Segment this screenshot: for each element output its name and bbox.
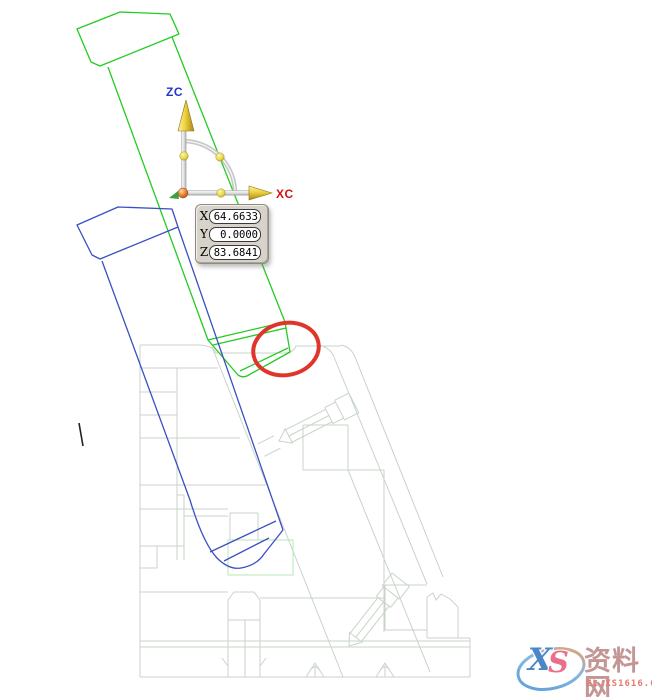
- mold-ejector-channel[interactable]: [222, 513, 385, 677]
- mold-bottom-screw-tips[interactable]: [306, 663, 394, 677]
- watermark-site-url: ZL.XS1616.COM: [586, 679, 652, 689]
- mold-left-details[interactable]: [140, 368, 266, 592]
- mold-body-wireframe[interactable]: [140, 345, 470, 677]
- z-coordinate-input[interactable]: [209, 245, 261, 260]
- coordinate-panel: X Y Z: [195, 204, 269, 264]
- rotation-arc-highlight: [184, 141, 235, 193]
- coordinate-row-x: X: [199, 209, 264, 224]
- mold-outline[interactable]: [140, 345, 470, 677]
- x-axis-label: XC: [276, 187, 294, 201]
- tick-mark: [79, 423, 83, 446]
- coordinate-row-z: Z: [199, 245, 264, 260]
- cad-viewport[interactable]: ZC XC X Y Z X S 资料网 ZL.XS1616.COM: [0, 0, 652, 697]
- mold-diagonal-faces[interactable]: [212, 345, 443, 677]
- drag-handle-z[interactable]: [180, 152, 188, 160]
- watermark-logo: X S 资料网 ZL.XS1616.COM: [510, 641, 652, 696]
- watermark-letter-s: S: [548, 645, 569, 679]
- z-axis-shaft[interactable]: [182, 128, 187, 193]
- z-axis-label: ZC: [166, 85, 183, 99]
- x-axis-arrow-icon[interactable]: [249, 186, 272, 200]
- viewport-canvas[interactable]: [0, 0, 652, 697]
- y-field-label: Y: [199, 227, 209, 242]
- drag-handle-rotate[interactable]: [216, 153, 224, 161]
- coordinate-row-y: Y: [199, 227, 264, 242]
- bolt-wireframe-upper[interactable]: [256, 393, 359, 460]
- watermark-site-name: 资料网: [584, 647, 652, 697]
- x-field-label: X: [199, 209, 209, 224]
- wcs-triad[interactable]: [169, 100, 272, 200]
- y-coordinate-input[interactable]: [209, 227, 261, 242]
- y-axis-hidden-arrow-icon[interactable]: [169, 191, 179, 199]
- origin-handle[interactable]: [178, 188, 188, 198]
- z-field-label: Z: [199, 245, 209, 260]
- drag-handle-x[interactable]: [217, 189, 225, 197]
- x-coordinate-input[interactable]: [209, 209, 261, 224]
- z-axis-arrow-icon[interactable]: [178, 100, 194, 131]
